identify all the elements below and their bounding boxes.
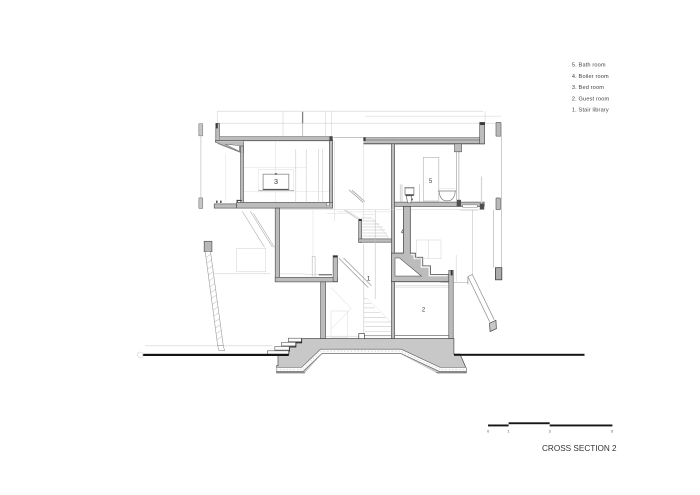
svg-text:1. Stair library: 1. Stair library [572, 108, 609, 114]
svg-text:4. Boiler room: 4. Boiler room [572, 74, 609, 80]
svg-text:1: 1 [508, 430, 510, 434]
svg-text:5. Bath room: 5. Bath room [572, 63, 606, 69]
svg-text:6: 6 [611, 430, 613, 434]
svg-text:3: 3 [274, 177, 278, 186]
svg-text:CROSS SECTION 2: CROSS SECTION 2 [542, 444, 617, 453]
svg-text:1: 1 [367, 275, 371, 282]
svg-text:3. Bed room: 3. Bed room [572, 85, 604, 91]
svg-text:2. Guest room: 2. Guest room [572, 96, 610, 102]
svg-text:0: 0 [487, 430, 489, 434]
svg-text:3: 3 [549, 430, 551, 434]
